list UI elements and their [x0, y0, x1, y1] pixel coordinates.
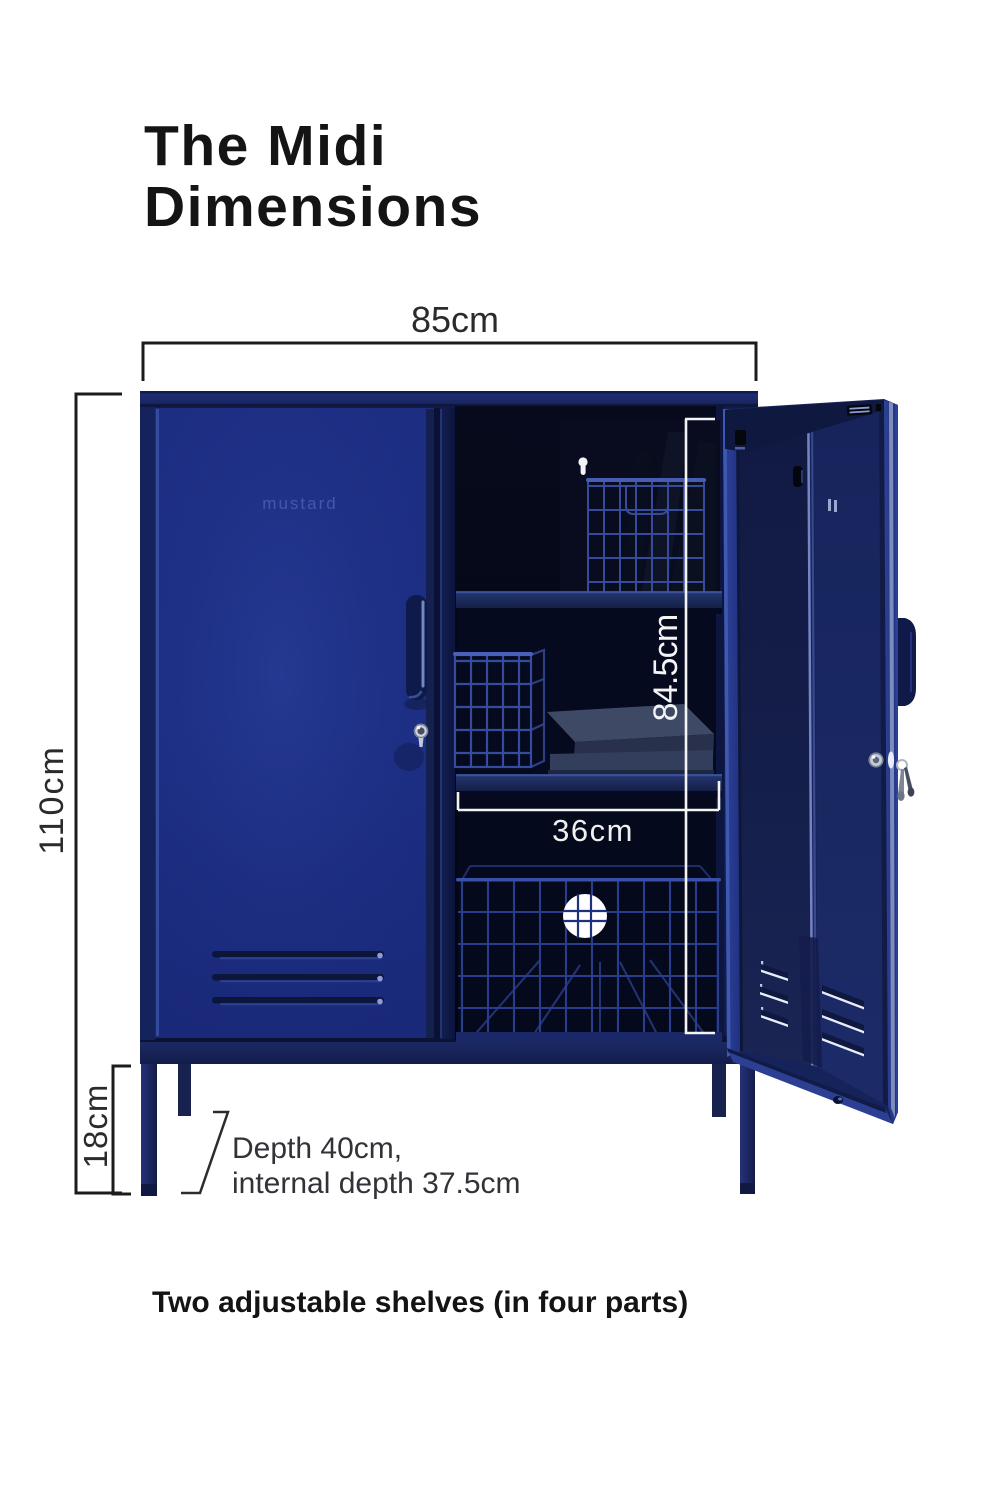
svg-text:Depth 40cm,: Depth 40cm, [232, 1132, 402, 1165]
svg-text:110cm: 110cm [33, 745, 71, 855]
svg-text:internal depth 37.5cm: internal depth 37.5cm [232, 1167, 521, 1200]
svg-text:85cm: 85cm [411, 299, 499, 340]
svg-text:mustard: mustard [262, 494, 337, 513]
svg-text:The Midi: The Midi [144, 114, 387, 178]
svg-text:36cm: 36cm [552, 813, 634, 848]
svg-text:18cm: 18cm [77, 1084, 114, 1169]
svg-text:84.5cm: 84.5cm [647, 615, 685, 722]
svg-text:Two adjustable shelves (in fou: Two adjustable shelves (in four parts) [152, 1286, 688, 1319]
svg-text:Dimensions: Dimensions [144, 175, 482, 239]
